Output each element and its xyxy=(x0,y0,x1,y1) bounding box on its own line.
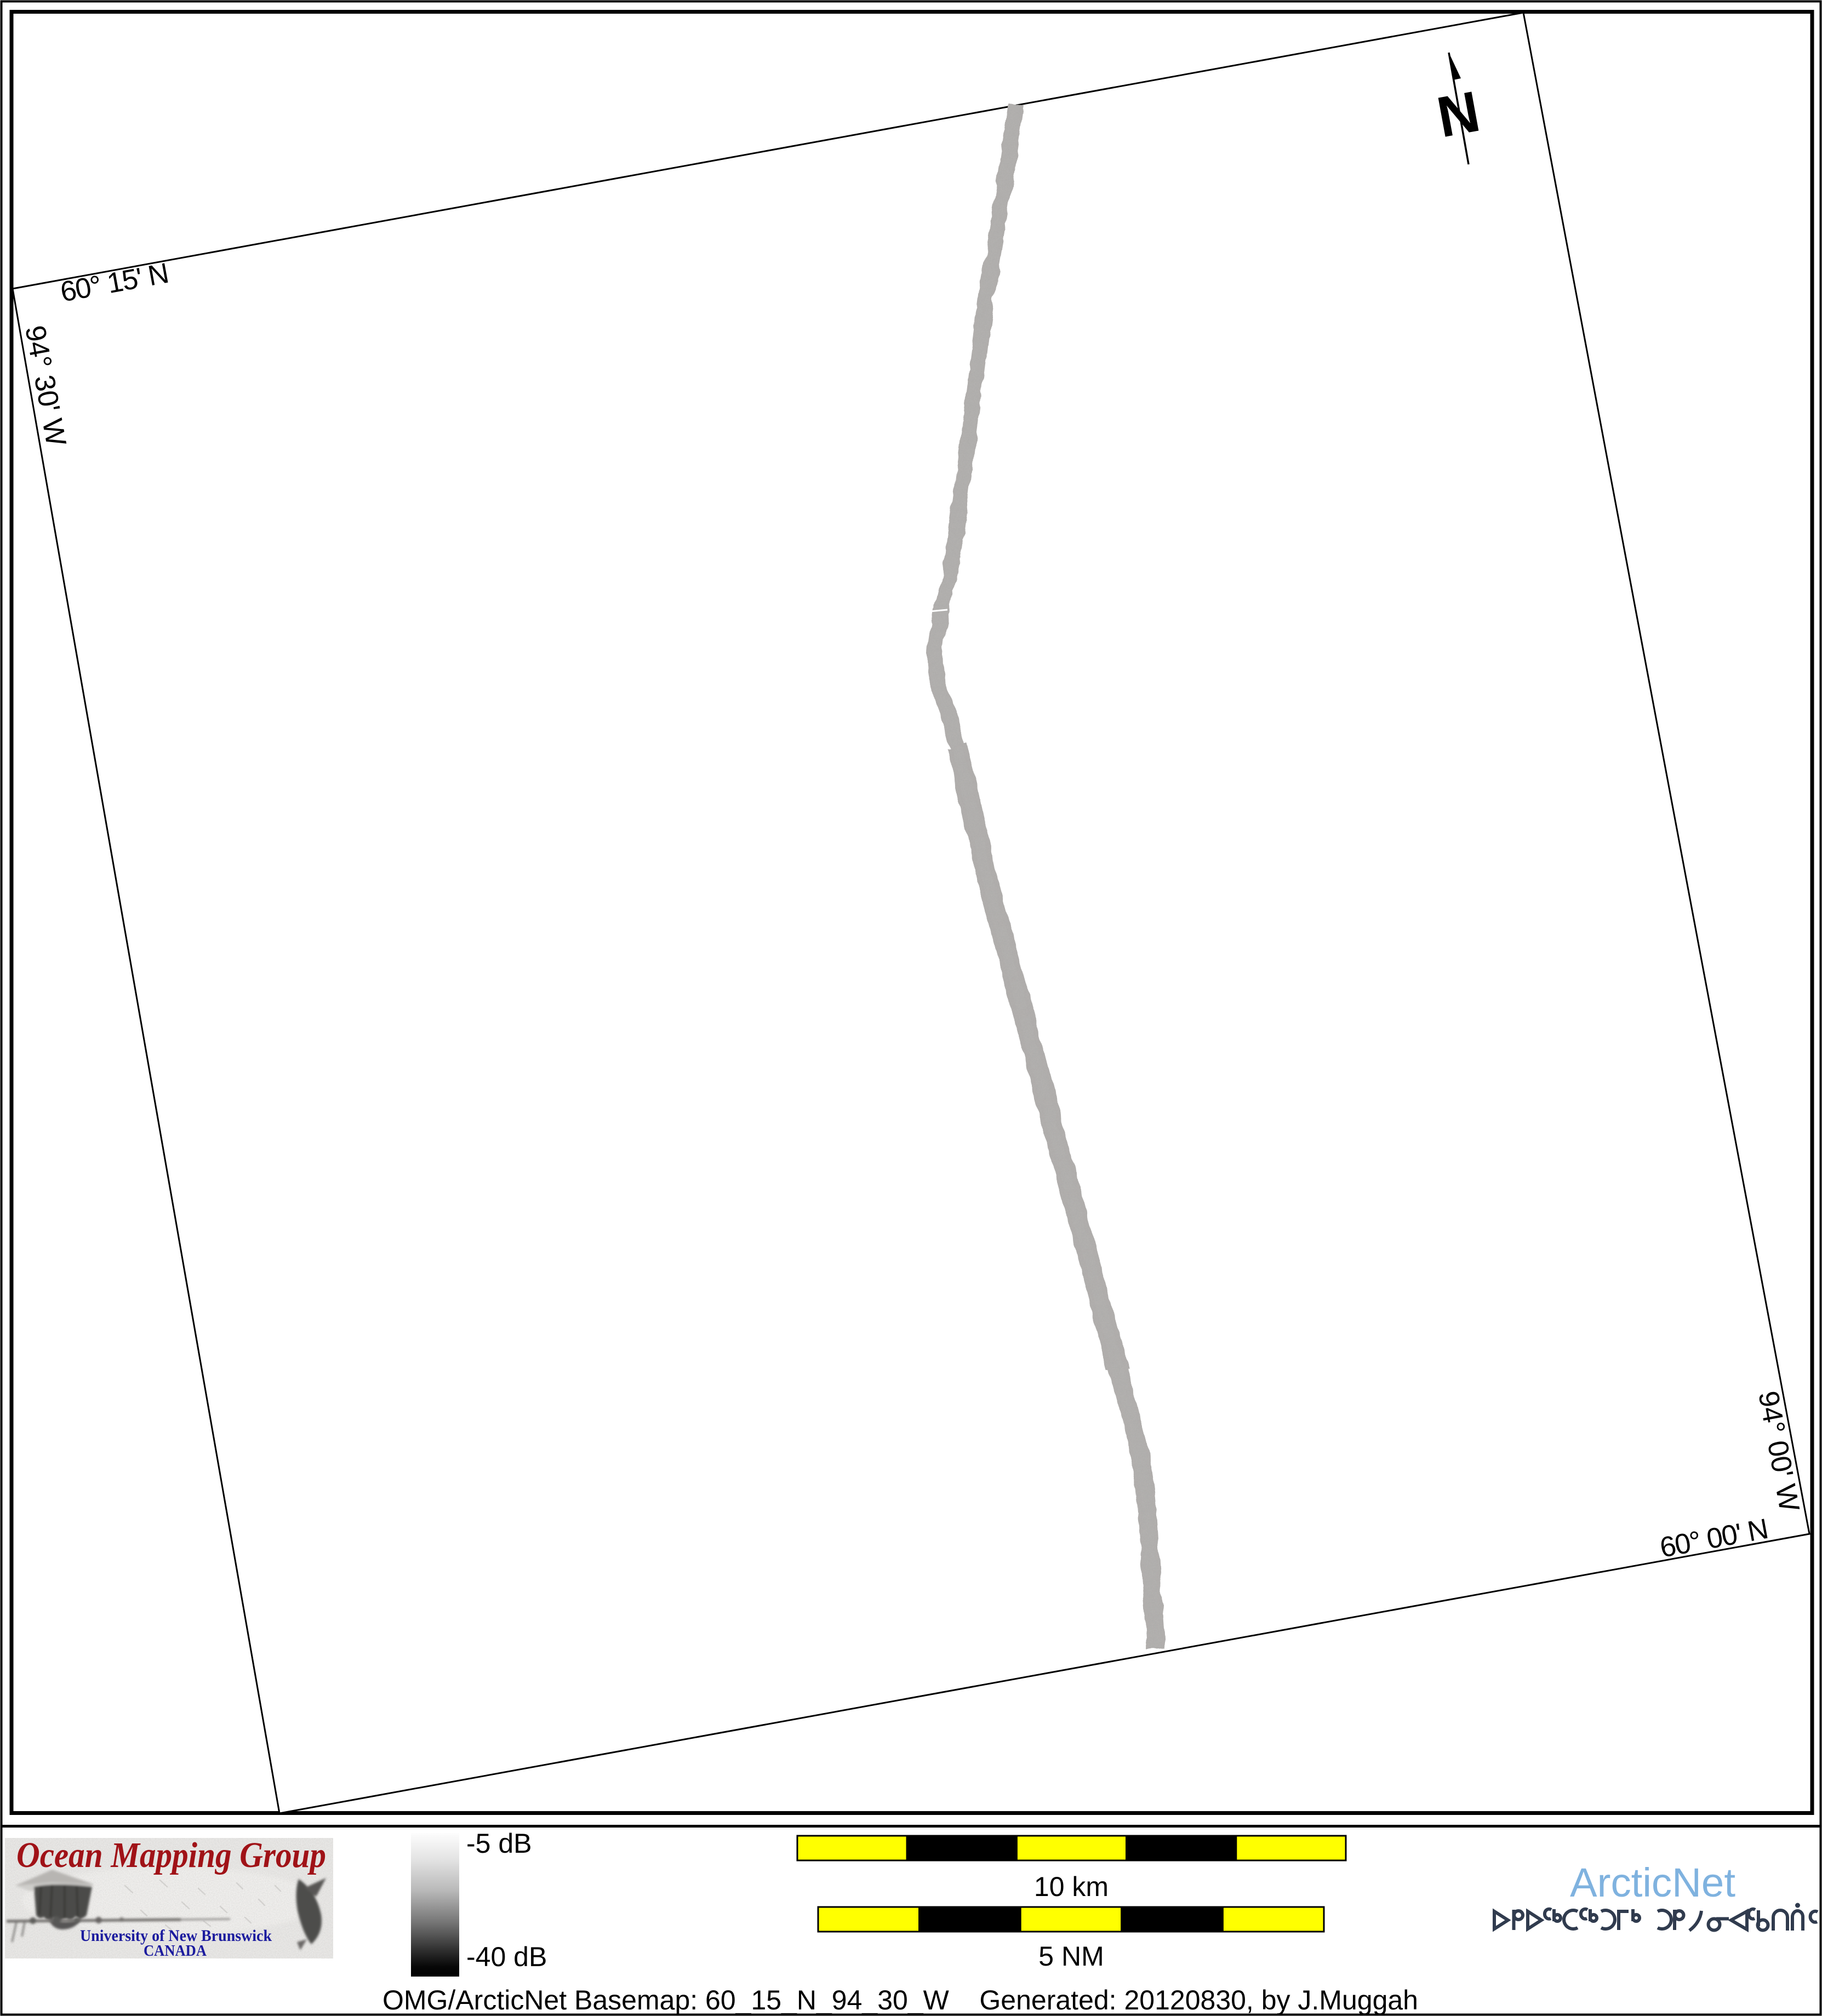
svg-text:ArcticNet: ArcticNet xyxy=(1570,1860,1735,1905)
svg-text:5 NM: 5 NM xyxy=(1038,1941,1104,1972)
svg-text:-5 dB: -5 dB xyxy=(466,1828,532,1859)
svg-text:Ocean Mapping Group: Ocean Mapping Group xyxy=(16,1835,326,1875)
svg-text:10 km: 10 km xyxy=(1034,1871,1109,1902)
svg-text:OMG/ArcticNet Basemap: 60_15_N: OMG/ArcticNet Basemap: 60_15_N_94_30_W G… xyxy=(382,1985,1418,2015)
svg-text:-40 dB: -40 dB xyxy=(466,1941,547,1972)
svg-text:CANADA: CANADA xyxy=(144,1943,207,1960)
